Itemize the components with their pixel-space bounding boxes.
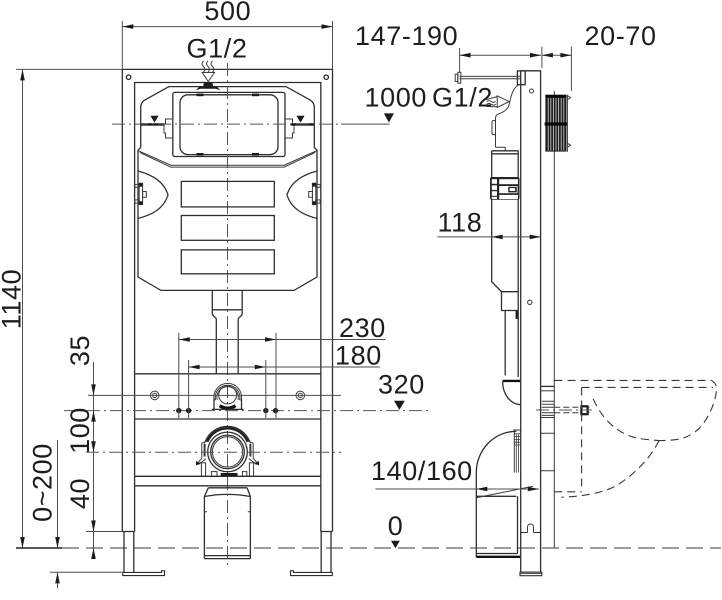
svg-text:320: 320: [378, 370, 425, 400]
svg-text:0~200: 0~200: [28, 443, 58, 522]
svg-text:1140: 1140: [0, 269, 27, 329]
svg-text:500: 500: [204, 0, 251, 26]
svg-text:230: 230: [339, 313, 386, 343]
svg-text:147-190: 147-190: [355, 21, 458, 51]
svg-text:100: 100: [65, 407, 95, 454]
svg-text:20-70: 20-70: [585, 21, 657, 51]
svg-text:0: 0: [388, 511, 404, 541]
svg-text:180: 180: [335, 341, 382, 371]
svg-text:140/160: 140/160: [371, 456, 473, 486]
svg-text:G1/2: G1/2: [432, 83, 493, 113]
svg-text:40: 40: [65, 478, 95, 509]
svg-text:1000: 1000: [365, 83, 427, 113]
svg-text:G1/2: G1/2: [187, 34, 248, 64]
svg-text:118: 118: [438, 208, 483, 238]
svg-text:35: 35: [65, 335, 95, 366]
